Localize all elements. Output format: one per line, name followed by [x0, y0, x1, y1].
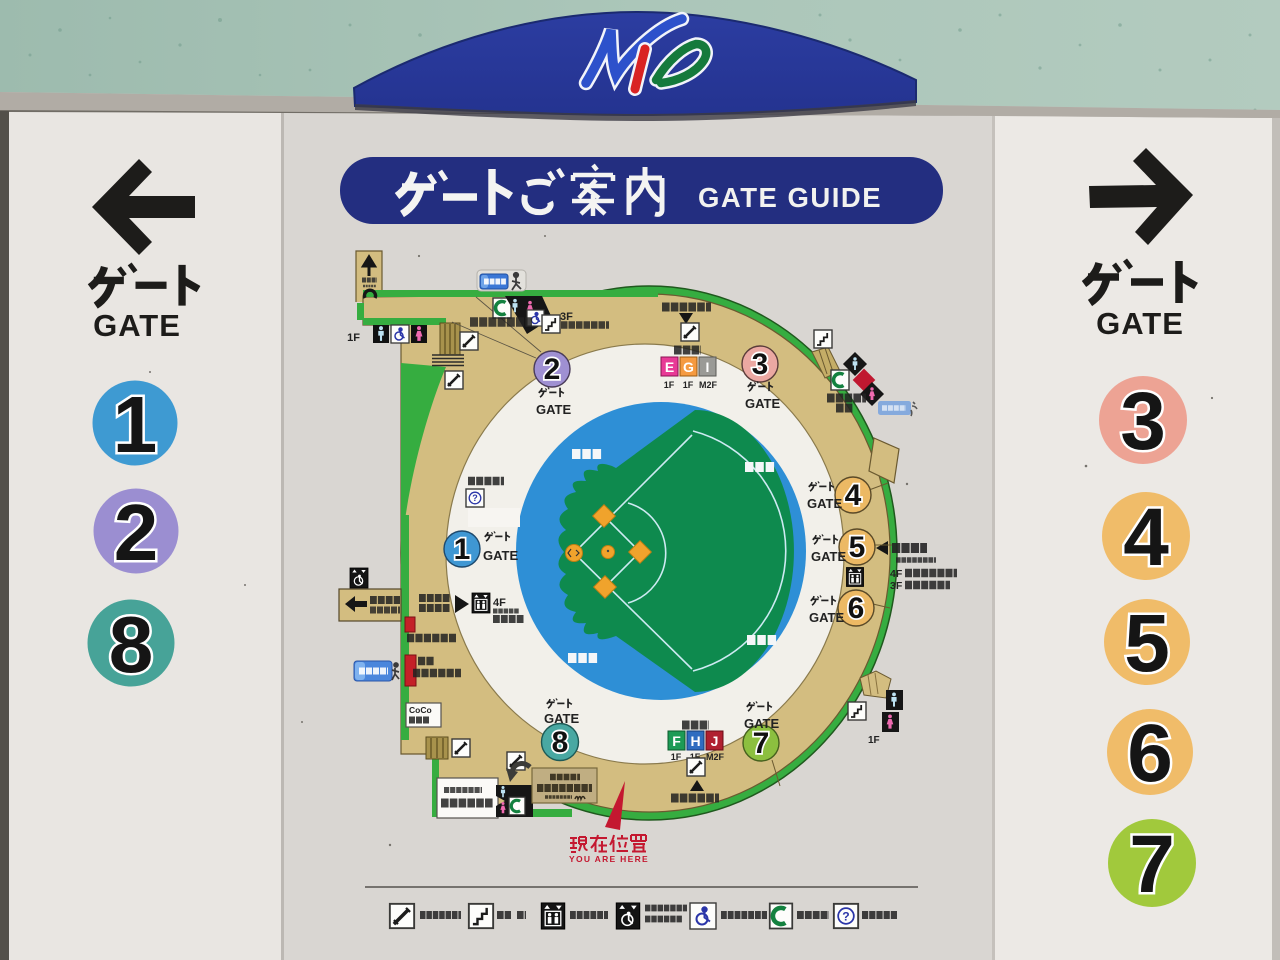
svg-text:GATE: GATE [544, 711, 579, 726]
svg-text:1F: 1F [683, 380, 694, 390]
svg-text:GATE: GATE [811, 549, 846, 564]
svg-text:2: 2 [114, 488, 159, 577]
svg-text:M2F: M2F [706, 752, 725, 762]
svg-text:6: 6 [848, 592, 865, 625]
svg-text:3F: 3F [560, 311, 573, 323]
svg-text:1: 1 [113, 380, 158, 469]
svg-text:GATE: GATE [809, 610, 844, 625]
svg-text:5: 5 [1124, 598, 1170, 689]
svg-text:GATE: GATE [93, 308, 181, 343]
svg-text:7: 7 [1129, 819, 1175, 910]
svg-text:2: 2 [544, 353, 561, 386]
svg-text:8: 8 [109, 600, 154, 689]
svg-text:3: 3 [1120, 376, 1166, 467]
svg-text:GATE: GATE [1096, 306, 1184, 341]
svg-text:1F: 1F [664, 380, 675, 390]
svg-text:4: 4 [1123, 492, 1169, 583]
svg-text:3F: 3F [890, 580, 903, 592]
svg-text:6: 6 [1127, 708, 1173, 799]
svg-text:GATE: GATE [536, 402, 571, 417]
svg-text:1F: 1F [671, 752, 682, 762]
svg-text:GATE: GATE [807, 496, 842, 511]
svg-text:4F: 4F [890, 568, 903, 580]
svg-text:1: 1 [454, 533, 471, 566]
svg-text:G: G [683, 359, 694, 375]
svg-text:GATE: GATE [744, 716, 779, 731]
svg-text:GATE: GATE [745, 396, 780, 411]
svg-text:GATE: GATE [483, 548, 518, 563]
svg-text:GATE GUIDE: GATE GUIDE [698, 182, 882, 213]
svg-text:7: 7 [753, 727, 770, 760]
svg-text:YOU ARE HERE: YOU ARE HERE [569, 854, 649, 864]
svg-text:F: F [672, 733, 681, 749]
svg-text:I: I [706, 359, 710, 375]
svg-text:8: 8 [552, 726, 569, 759]
svg-text:M2F: M2F [699, 380, 718, 390]
svg-text:4: 4 [845, 479, 862, 512]
svg-text:1F: 1F [347, 332, 360, 344]
svg-text:E: E [665, 359, 674, 375]
svg-text:4F: 4F [493, 597, 506, 609]
svg-text:3: 3 [752, 348, 769, 381]
svg-text:5: 5 [849, 531, 866, 564]
svg-text:CoCo: CoCo [409, 705, 432, 715]
svg-text:H: H [690, 733, 700, 749]
svg-text:1F: 1F [868, 735, 880, 746]
svg-text:J: J [711, 733, 719, 749]
